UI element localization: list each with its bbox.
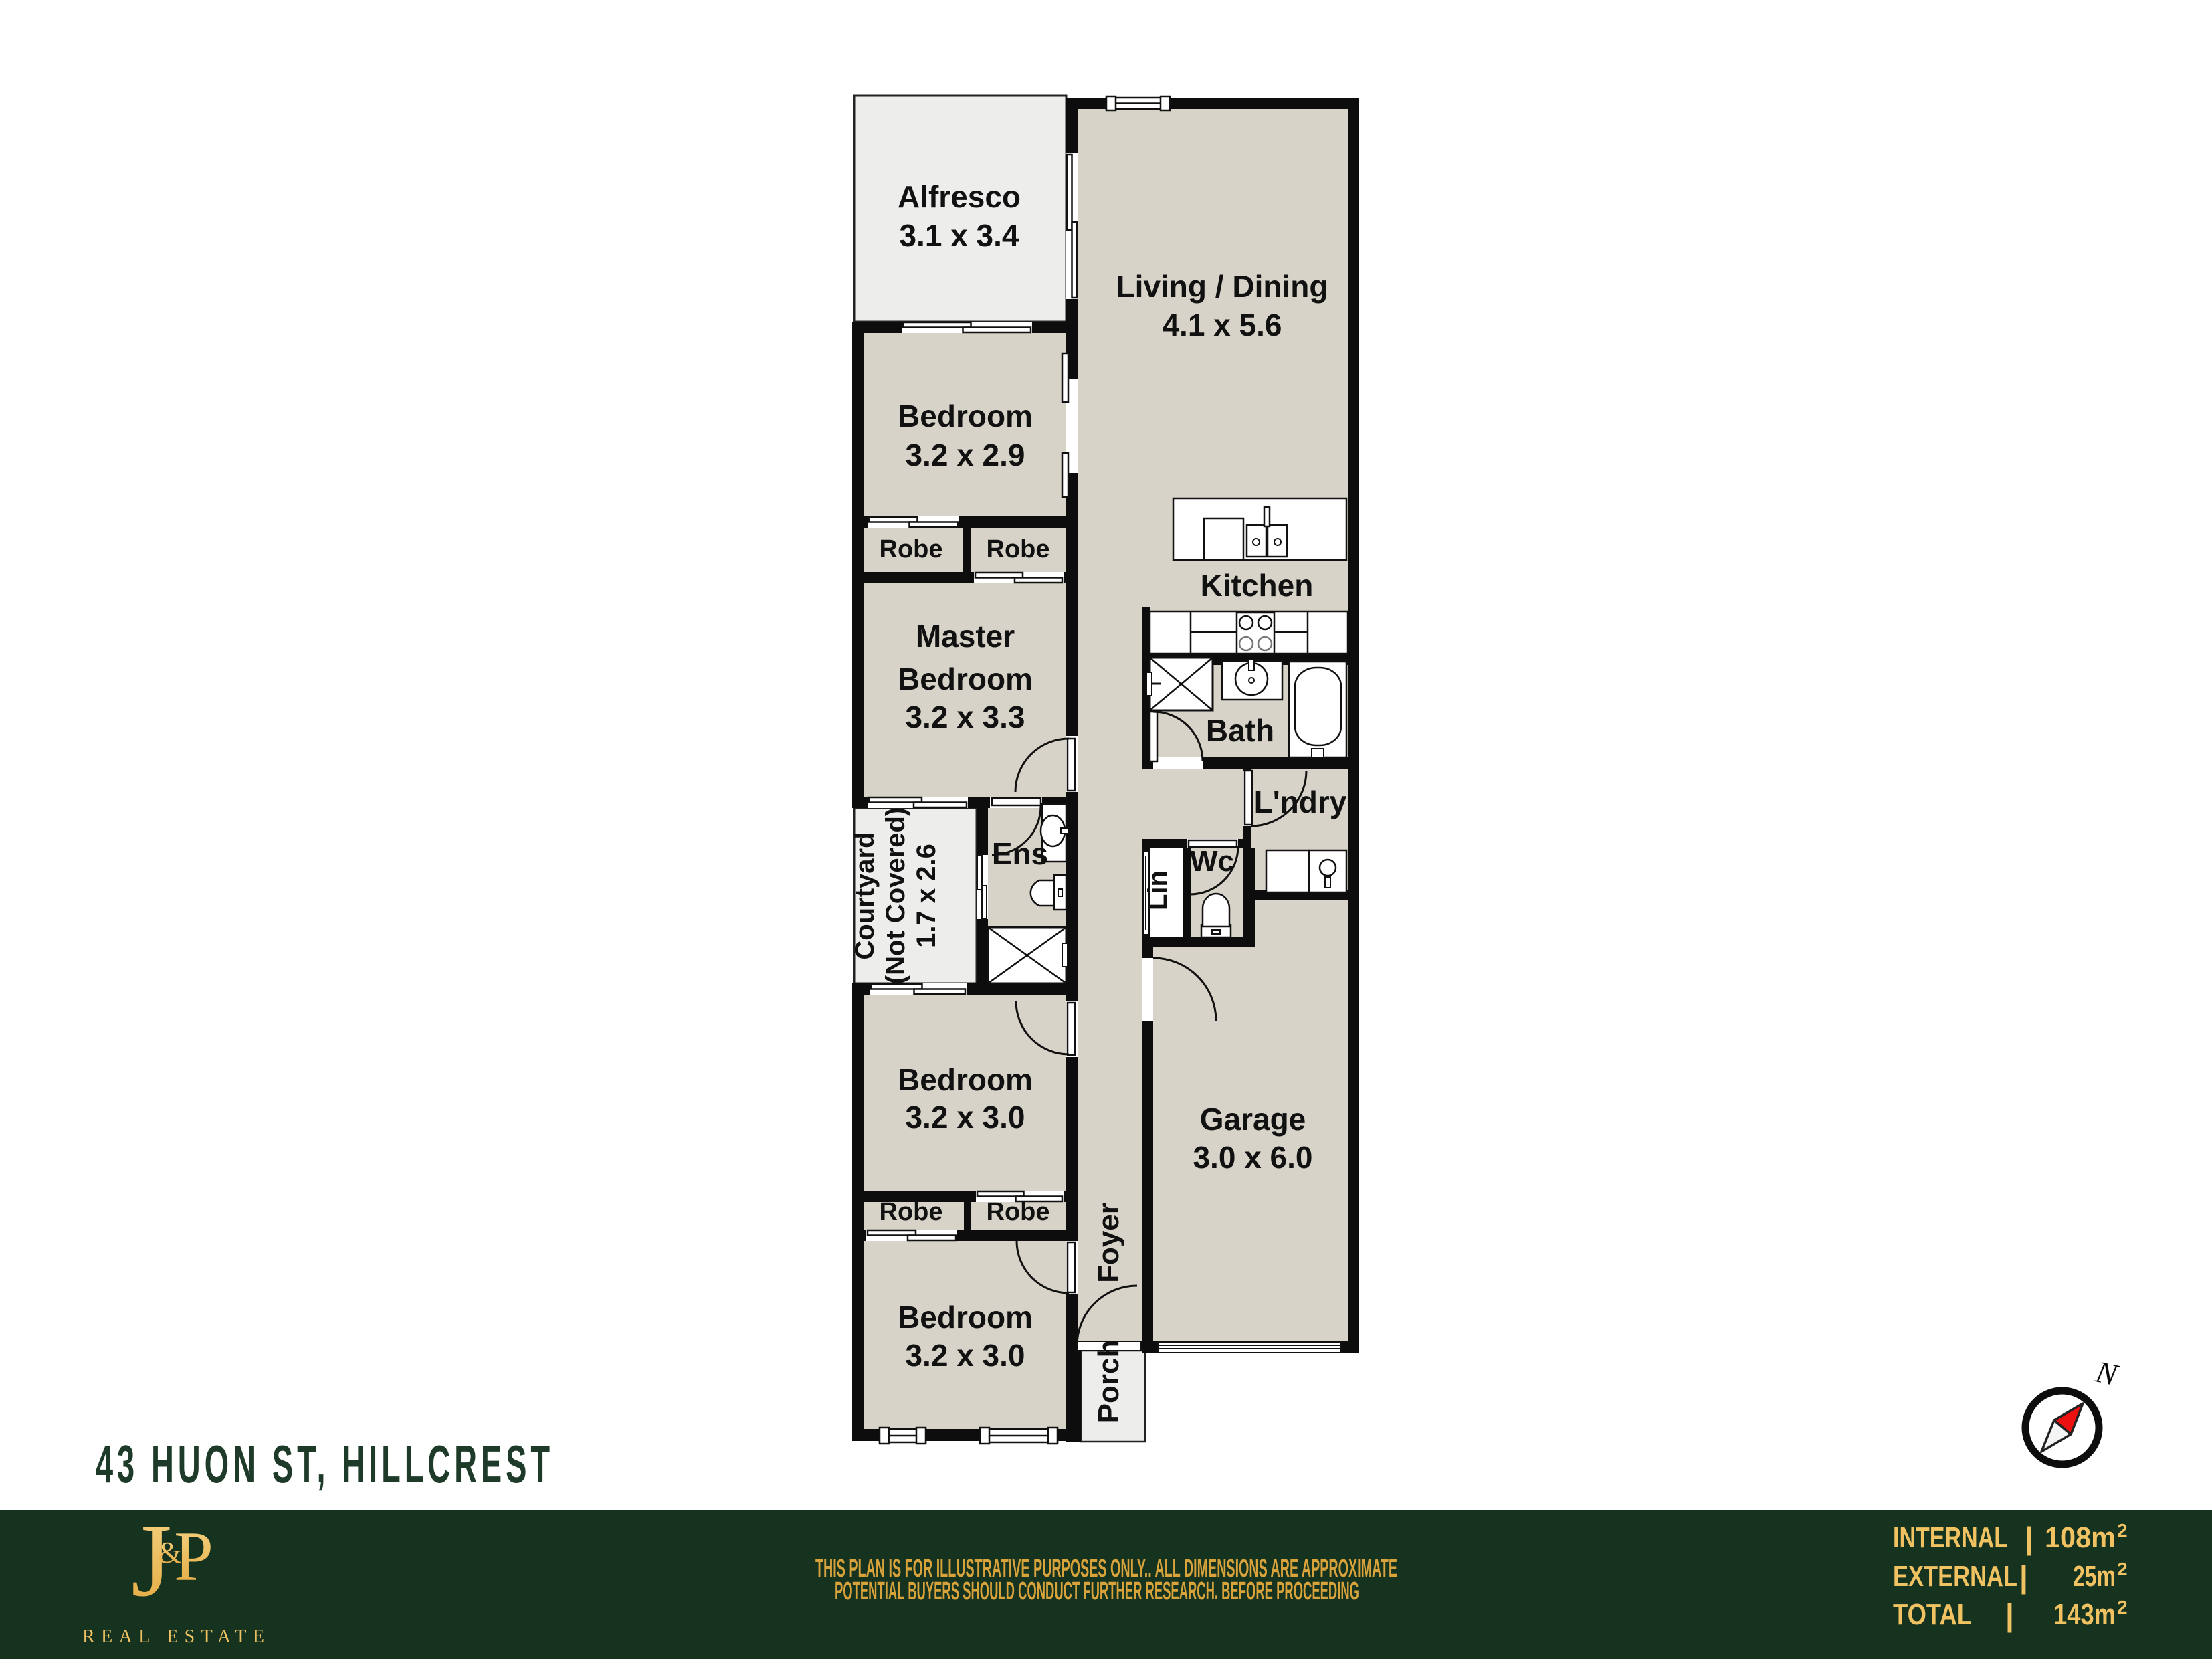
svg-text:3.1 x 3.4: 3.1 x 3.4 [899,218,1019,253]
svg-text:Porch: Porch [1092,1340,1125,1424]
svg-text:POTENTIAL BUYERS SHOULD CONDUC: POTENTIAL BUYERS SHOULD CONDUCT FURTHER … [835,1577,1359,1605]
svg-text:Ens: Ens [992,836,1048,871]
svg-text:Bedroom: Bedroom [898,399,1033,433]
svg-text:43 HUON ST, HILLCREST: 43 HUON ST, HILLCREST [96,1434,554,1494]
svg-text:Living / Dining: Living / Dining [1116,269,1328,304]
svg-text:Courtyard: Courtyard [850,832,880,959]
svg-text:25m: 25m [2073,1560,2116,1593]
svg-text:Foyer: Foyer [1092,1203,1125,1283]
svg-text:Wc: Wc [1190,845,1234,878]
svg-text:143m: 143m [2053,1598,2116,1631]
svg-text:3.2 x 3.3: 3.2 x 3.3 [905,700,1025,735]
svg-text:Robe: Robe [880,535,943,563]
svg-text:108m: 108m [2045,1521,2116,1554]
svg-text:2: 2 [2117,1597,2128,1618]
svg-text:INTERNAL: INTERNAL [1893,1521,2008,1554]
svg-text:3.2 x 3.0: 3.2 x 3.0 [905,1100,1025,1135]
svg-text:Lin: Lin [1143,870,1173,910]
svg-text:Bedroom: Bedroom [898,1062,1033,1097]
svg-text:|: | [2025,1521,2033,1555]
svg-text:Master: Master [916,619,1015,654]
svg-text:3.2 x 3.0: 3.2 x 3.0 [905,1338,1025,1373]
svg-text:P: P [174,1517,213,1595]
svg-text:TOTAL: TOTAL [1893,1598,1972,1631]
svg-text:2: 2 [2117,1520,2128,1541]
svg-text:|: | [2005,1597,2014,1632]
svg-text:Robe: Robe [987,1198,1050,1226]
svg-text:|: | [2019,1559,2028,1594]
svg-text:4.1 x 5.6: 4.1 x 5.6 [1162,308,1282,343]
svg-text:3.0 x 6.0: 3.0 x 6.0 [1193,1140,1312,1175]
svg-text:(Not Covered): (Not Covered) [881,807,910,984]
svg-text:Robe: Robe [987,535,1050,563]
svg-text:3.2 x 2.9: 3.2 x 2.9 [905,437,1025,472]
svg-text:Robe: Robe [880,1198,943,1226]
svg-text:N: N [2092,1354,2122,1392]
svg-text:Kitchen: Kitchen [1201,568,1314,603]
svg-text:Garage: Garage [1200,1102,1306,1137]
svg-text:Bedroom: Bedroom [898,662,1033,696]
svg-text:EXTERNAL: EXTERNAL [1893,1560,2017,1593]
svg-text:L'ndry: L'ndry [1254,785,1347,819]
svg-text:REAL ESTATE: REAL ESTATE [82,1626,264,1647]
svg-text:Bedroom: Bedroom [898,1300,1033,1335]
svg-text:Bath: Bath [1206,713,1274,748]
svg-text:1.7 x 2.6: 1.7 x 2.6 [912,844,941,948]
svg-text:Alfresco: Alfresco [898,179,1021,214]
svg-text:2: 2 [2117,1559,2128,1579]
